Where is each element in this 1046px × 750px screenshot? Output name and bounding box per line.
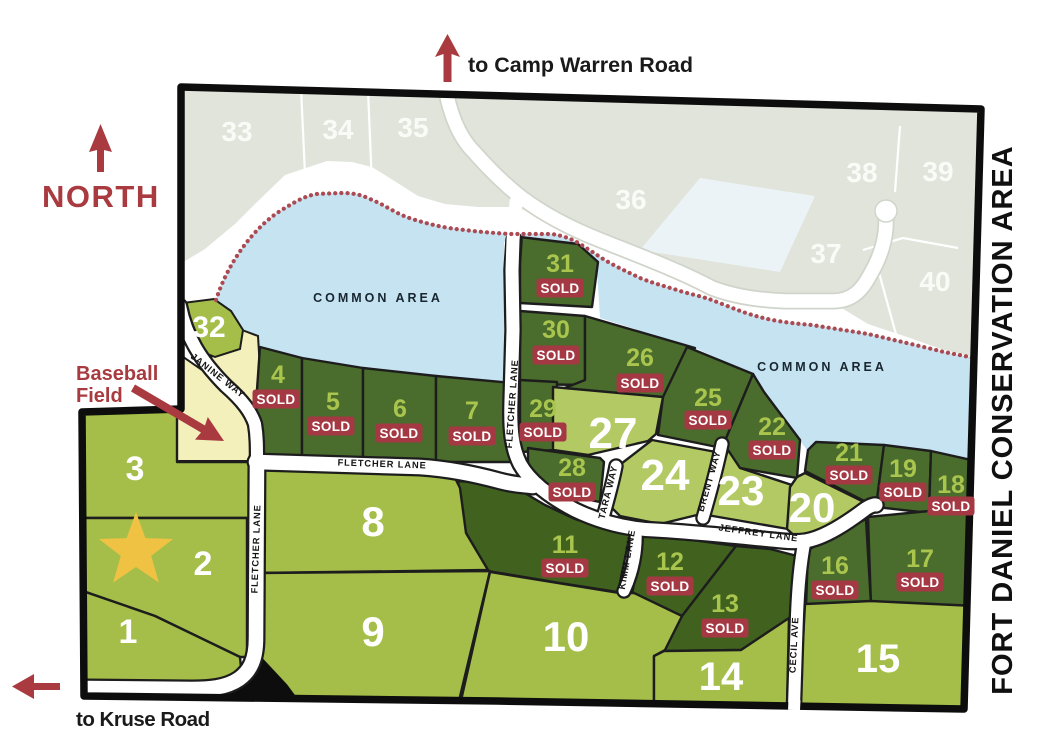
svg-text:15: 15 xyxy=(856,637,901,681)
svg-text:Baseball: Baseball xyxy=(76,363,158,385)
svg-text:32: 32 xyxy=(192,311,225,344)
svg-text:6: 6 xyxy=(393,395,407,423)
svg-text:21: 21 xyxy=(835,439,863,467)
svg-text:COMMON AREA: COMMON AREA xyxy=(313,291,443,305)
svg-text:19: 19 xyxy=(889,455,917,483)
svg-text:SOLD: SOLD xyxy=(311,419,350,434)
svg-text:37: 37 xyxy=(810,238,841,269)
svg-text:FORT DANIEL CONSERVATION AREA: FORT DANIEL CONSERVATION AREA xyxy=(987,145,1019,694)
svg-text:33: 33 xyxy=(221,116,252,147)
svg-text:SOLD: SOLD xyxy=(552,485,591,500)
svg-text:SOLD: SOLD xyxy=(452,429,491,444)
svg-text:34: 34 xyxy=(322,114,354,145)
svg-text:31: 31 xyxy=(546,250,574,278)
svg-text:18: 18 xyxy=(937,471,965,499)
svg-text:7: 7 xyxy=(465,397,479,425)
svg-text:SOLD: SOLD xyxy=(256,392,295,407)
svg-text:SOLD: SOLD xyxy=(536,348,575,363)
svg-text:SOLD: SOLD xyxy=(815,583,854,598)
svg-text:SOLD: SOLD xyxy=(540,281,579,296)
svg-text:22: 22 xyxy=(758,413,786,441)
svg-text:30: 30 xyxy=(542,316,570,344)
svg-text:24: 24 xyxy=(641,451,690,500)
svg-text:8: 8 xyxy=(361,498,384,545)
svg-text:2: 2 xyxy=(194,545,213,583)
svg-text:11: 11 xyxy=(552,531,579,559)
svg-text:27: 27 xyxy=(589,409,638,458)
svg-text:SOLD: SOLD xyxy=(650,579,689,594)
svg-text:1: 1 xyxy=(119,613,138,651)
svg-text:to Kruse Road: to Kruse Road xyxy=(76,708,210,731)
svg-text:35: 35 xyxy=(397,112,428,143)
svg-text:COMMON AREA: COMMON AREA xyxy=(757,360,887,374)
svg-text:40: 40 xyxy=(919,266,950,297)
svg-text:16: 16 xyxy=(821,552,849,580)
svg-text:20: 20 xyxy=(789,484,836,531)
svg-text:SOLD: SOLD xyxy=(900,575,939,590)
svg-text:17: 17 xyxy=(906,545,934,573)
svg-text:SOLD: SOLD xyxy=(379,426,418,441)
svg-text:14: 14 xyxy=(699,655,744,699)
svg-text:39: 39 xyxy=(922,156,953,187)
svg-text:10: 10 xyxy=(543,613,590,660)
svg-text:5: 5 xyxy=(326,388,340,416)
svg-text:36: 36 xyxy=(615,184,646,215)
svg-text:Field: Field xyxy=(76,385,123,407)
svg-text:12: 12 xyxy=(656,548,684,576)
svg-text:SOLD: SOLD xyxy=(829,468,868,483)
svg-text:13: 13 xyxy=(711,590,739,618)
svg-text:9: 9 xyxy=(361,608,384,655)
svg-text:28: 28 xyxy=(558,454,586,482)
svg-text:SOLD: SOLD xyxy=(883,485,922,500)
svg-text:26: 26 xyxy=(626,344,654,372)
svg-text:SOLD: SOLD xyxy=(545,561,584,576)
svg-text:38: 38 xyxy=(846,157,877,188)
svg-text:NORTH: NORTH xyxy=(42,179,160,214)
svg-text:23: 23 xyxy=(718,467,765,514)
svg-text:25: 25 xyxy=(694,384,722,412)
svg-text:29: 29 xyxy=(529,395,557,423)
svg-text:to Camp Warren Road: to Camp Warren Road xyxy=(468,53,693,77)
svg-text:SOLD: SOLD xyxy=(523,425,562,440)
svg-text:4: 4 xyxy=(271,361,285,389)
svg-text:SOLD: SOLD xyxy=(688,413,727,428)
svg-text:SOLD: SOLD xyxy=(620,376,659,391)
svg-text:SOLD: SOLD xyxy=(931,499,970,514)
svg-text:SOLD: SOLD xyxy=(752,443,791,458)
svg-text:SOLD: SOLD xyxy=(705,621,744,636)
svg-text:3: 3 xyxy=(126,450,145,488)
